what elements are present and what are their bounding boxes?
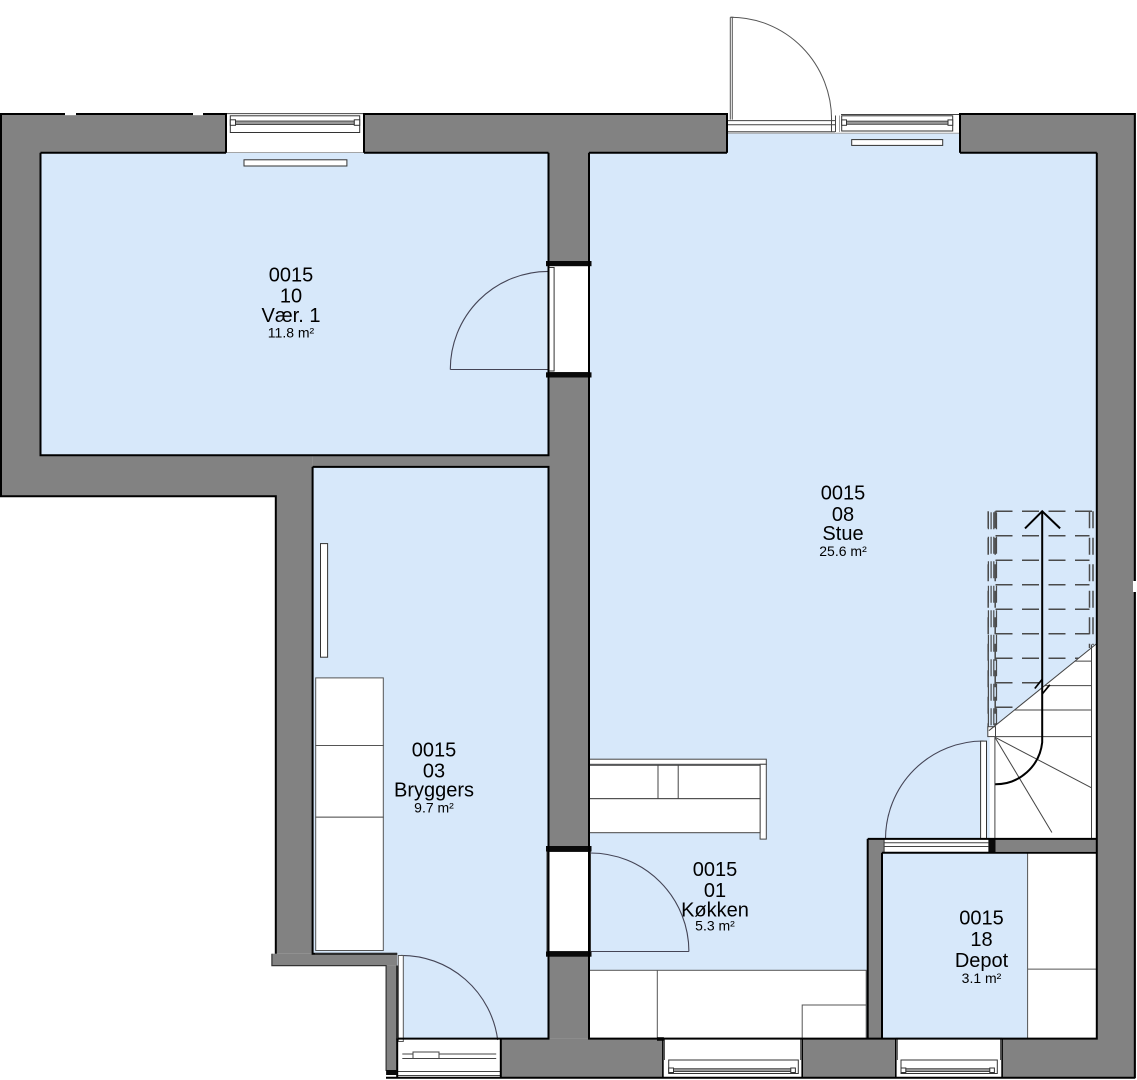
svg-text:5.3 m²: 5.3 m²	[695, 918, 735, 934]
svg-text:0015: 0015	[821, 483, 866, 505]
svg-text:Bryggers: Bryggers	[394, 780, 474, 802]
svg-text:0015: 0015	[693, 859, 738, 881]
svg-text:0015: 0015	[412, 740, 457, 762]
svg-text:0015: 0015	[959, 908, 1004, 930]
svg-text:18: 18	[970, 929, 992, 951]
svg-text:11.8 m²: 11.8 m²	[268, 325, 315, 341]
svg-text:9.7 m²: 9.7 m²	[414, 800, 454, 816]
svg-text:3.1 m²: 3.1 m²	[962, 970, 1002, 986]
svg-text:25.6 m²: 25.6 m²	[819, 543, 867, 559]
svg-text:Stue: Stue	[822, 523, 863, 545]
svg-text:0015: 0015	[269, 265, 314, 287]
svg-text:Depot: Depot	[955, 950, 1009, 972]
